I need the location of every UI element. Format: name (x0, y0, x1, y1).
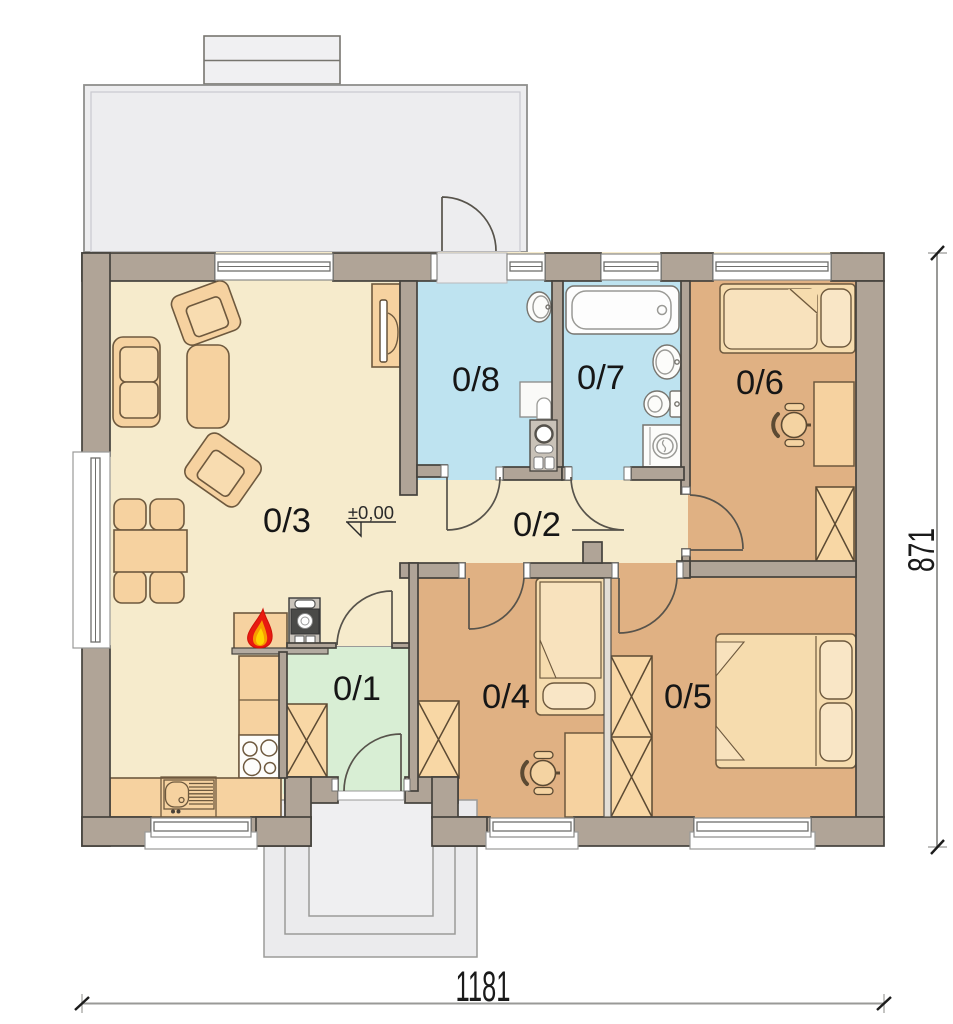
svg-text:0/6: 0/6 (736, 364, 784, 402)
svg-text:0/7: 0/7 (577, 359, 625, 397)
svg-text:0/4: 0/4 (482, 678, 530, 716)
svg-text:0/5: 0/5 (664, 678, 712, 716)
svg-text:0/3: 0/3 (263, 502, 311, 540)
svg-text:0/1: 0/1 (333, 670, 381, 708)
svg-text:±0,00: ±0,00 (348, 502, 394, 523)
svg-text:0/8: 0/8 (452, 361, 500, 399)
svg-text:0/2: 0/2 (513, 506, 561, 544)
svg-text:1181: 1181 (456, 964, 511, 1011)
svg-text:871: 871 (900, 528, 942, 572)
